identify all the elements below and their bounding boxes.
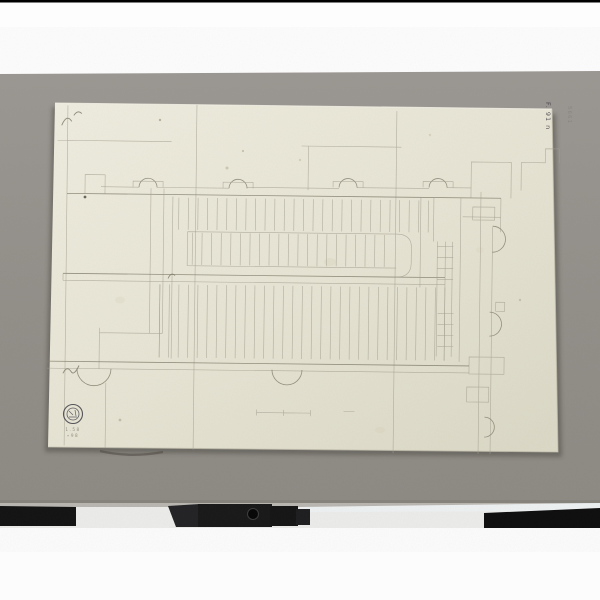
photographed-drawing-scene: 1.58 ∙98 F. 91 n 5661 (0, 0, 600, 600)
mount-right-wing (270, 506, 298, 526)
left-clamp (0, 506, 76, 526)
table-surface (0, 528, 600, 600)
photo-canvas: 1.58 ∙98 F. 91 n 5661 (0, 0, 600, 600)
top-border (0, 0, 600, 3)
mount-step (296, 509, 310, 525)
equipment-strip (0, 503, 600, 600)
mount-knob (248, 509, 259, 520)
photo-grain (0, 71, 600, 508)
